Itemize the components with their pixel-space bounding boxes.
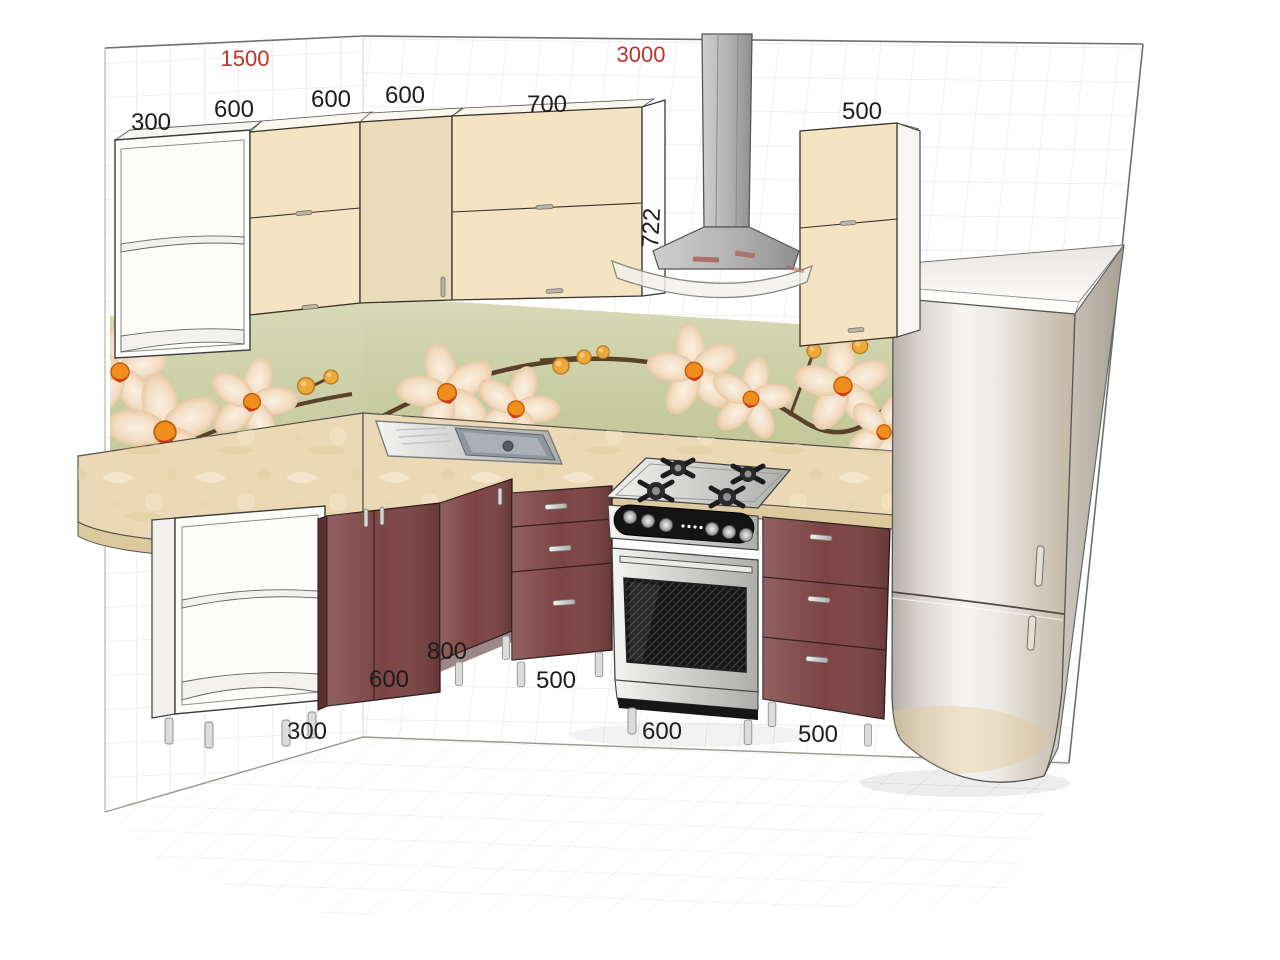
upper-cabinet-600-left bbox=[250, 112, 372, 315]
door-handle bbox=[380, 507, 384, 525]
render-canvas: 1500 3000 300 600 600 600 700 500 722 80… bbox=[0, 0, 1280, 960]
kitchen-3d-render: 1500 3000 300 600 600 600 700 500 722 80… bbox=[0, 0, 1280, 960]
dimension-label: 700 bbox=[527, 91, 567, 118]
dimension-label: 600 bbox=[642, 718, 682, 745]
door-handle bbox=[546, 289, 563, 294]
drawer-handle bbox=[553, 599, 575, 606]
dimension-label-height: 722 bbox=[637, 207, 666, 248]
dimension-label: 600 bbox=[311, 86, 351, 113]
upper-corner-shelf-unit bbox=[115, 121, 262, 358]
hood-chimney bbox=[702, 34, 752, 227]
drawer-handle bbox=[545, 503, 567, 510]
dimension-label: 500 bbox=[536, 667, 576, 694]
hood-brand-mark bbox=[693, 257, 719, 263]
upper-cabinet-500-side bbox=[897, 123, 920, 337]
door-handle bbox=[441, 277, 445, 297]
door-handle bbox=[840, 220, 856, 225]
door-handle bbox=[364, 509, 368, 527]
upper-cabinet-500 bbox=[800, 123, 920, 346]
drawer-handle bbox=[549, 545, 571, 552]
dimension-label: 600 bbox=[385, 82, 425, 109]
door-handle bbox=[848, 327, 864, 332]
sink-drain bbox=[503, 441, 513, 451]
dimension-label: 800 bbox=[427, 638, 467, 665]
dimension-label-wall-left: 1500 bbox=[221, 46, 270, 71]
dimension-label-wall-right: 3000 bbox=[617, 42, 666, 67]
dimension-label: 600 bbox=[369, 666, 409, 693]
dimension-label: 300 bbox=[287, 718, 327, 745]
dimension-label: 500 bbox=[842, 98, 882, 125]
dimension-label: 600 bbox=[214, 96, 254, 123]
dimension-label: 500 bbox=[798, 721, 838, 748]
upper-cabinet-corner-600 bbox=[360, 108, 462, 303]
freezer-handle bbox=[1027, 616, 1036, 650]
dimension-label: 300 bbox=[131, 109, 171, 136]
door-handle bbox=[498, 488, 502, 505]
door-handle bbox=[536, 205, 553, 210]
